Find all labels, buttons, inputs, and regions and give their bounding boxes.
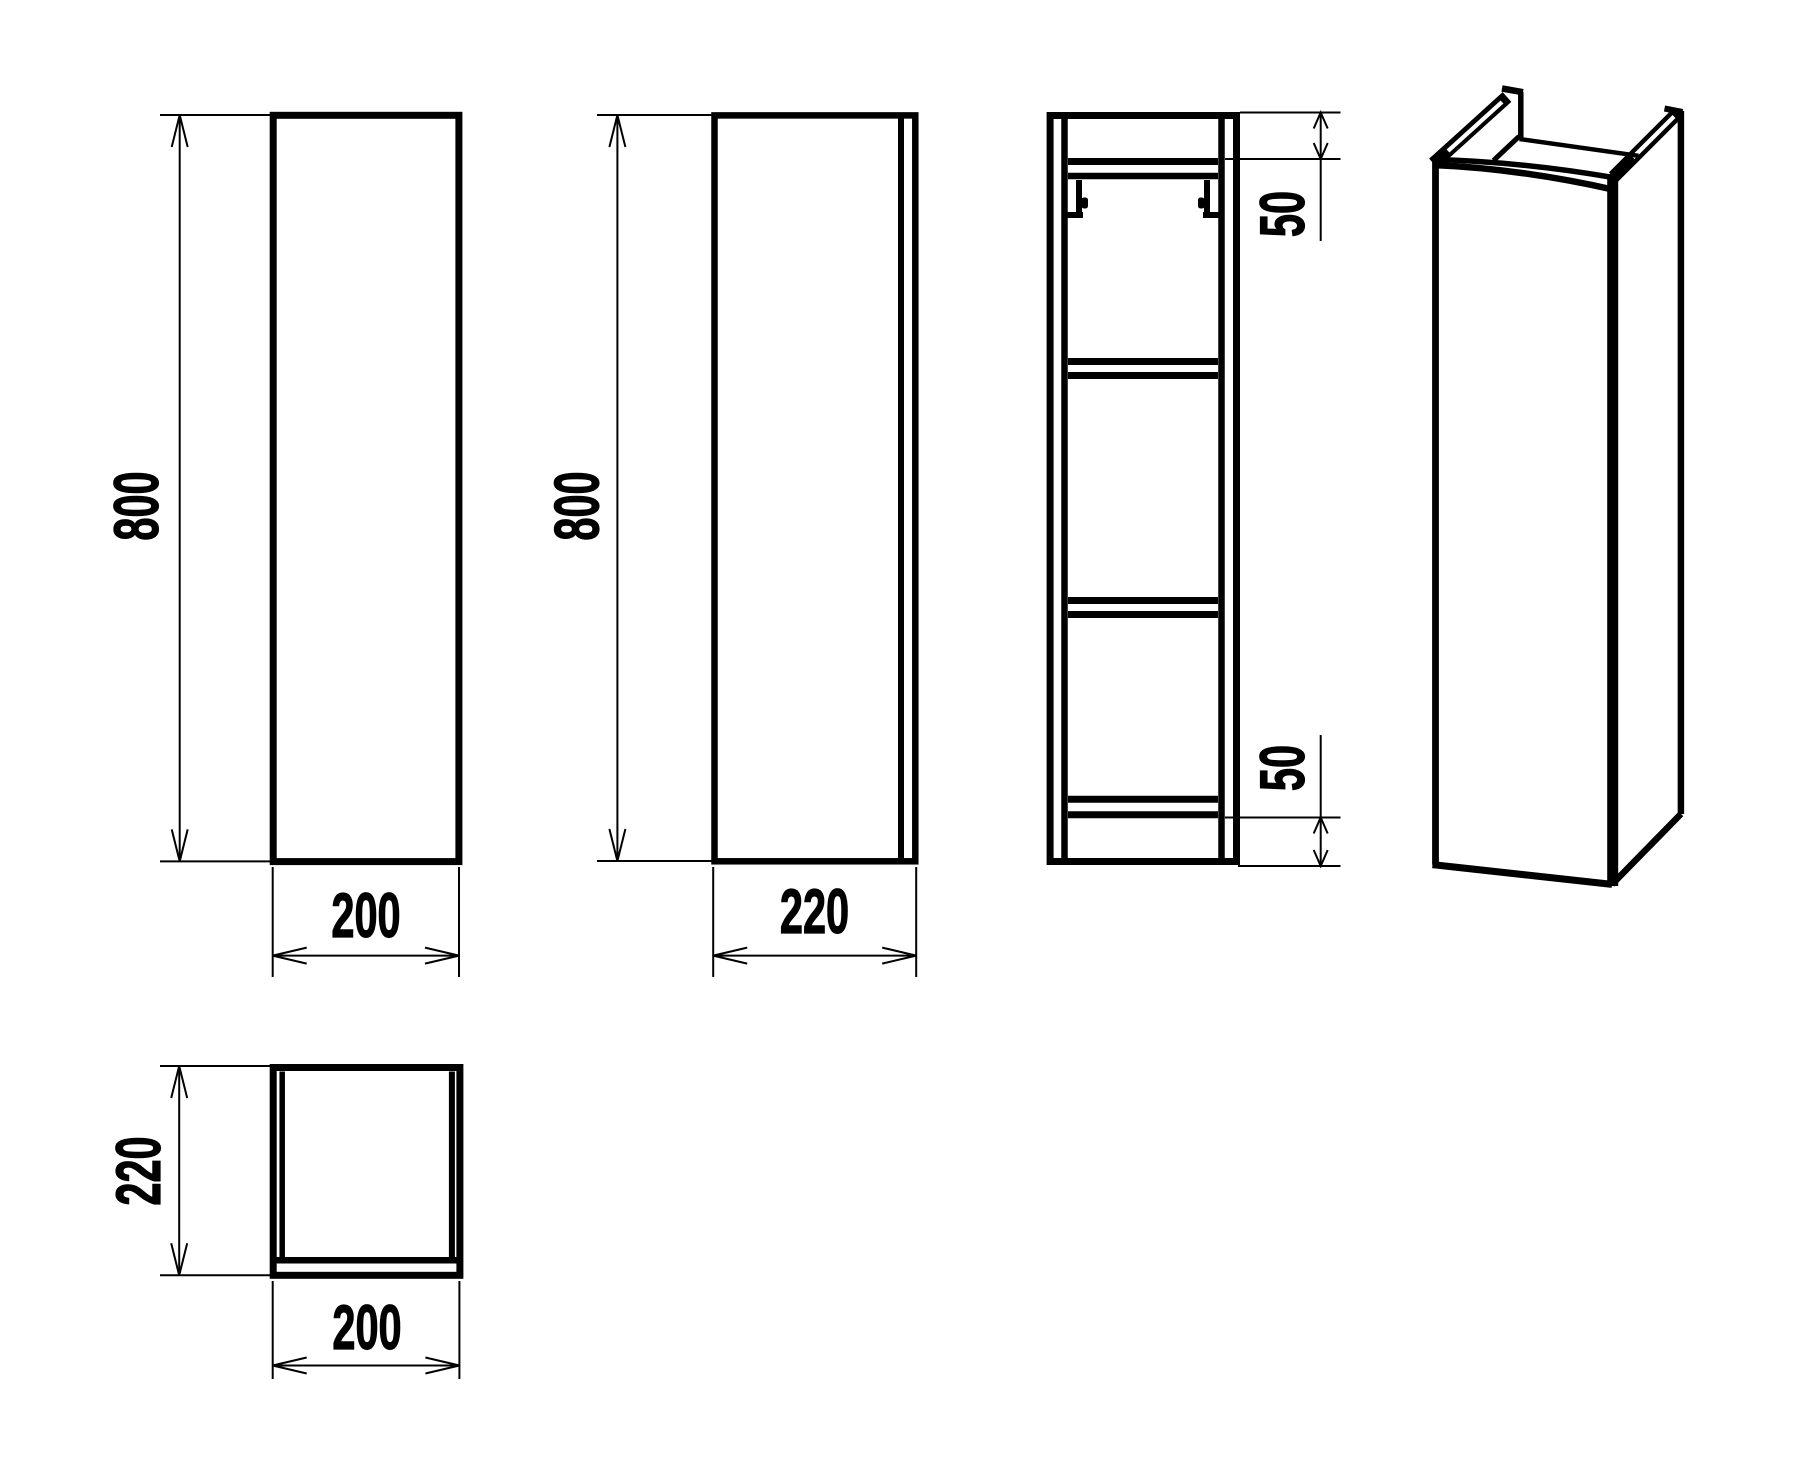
svg-text:200: 200 bbox=[331, 882, 400, 952]
svg-text:800: 800 bbox=[543, 471, 613, 540]
svg-text:220: 220 bbox=[780, 878, 849, 948]
svg-text:800: 800 bbox=[103, 471, 173, 540]
svg-text:220: 220 bbox=[105, 1136, 175, 1205]
svg-text:200: 200 bbox=[332, 1294, 401, 1364]
svg-text:50: 50 bbox=[1249, 745, 1319, 791]
svg-text:50: 50 bbox=[1249, 191, 1319, 237]
